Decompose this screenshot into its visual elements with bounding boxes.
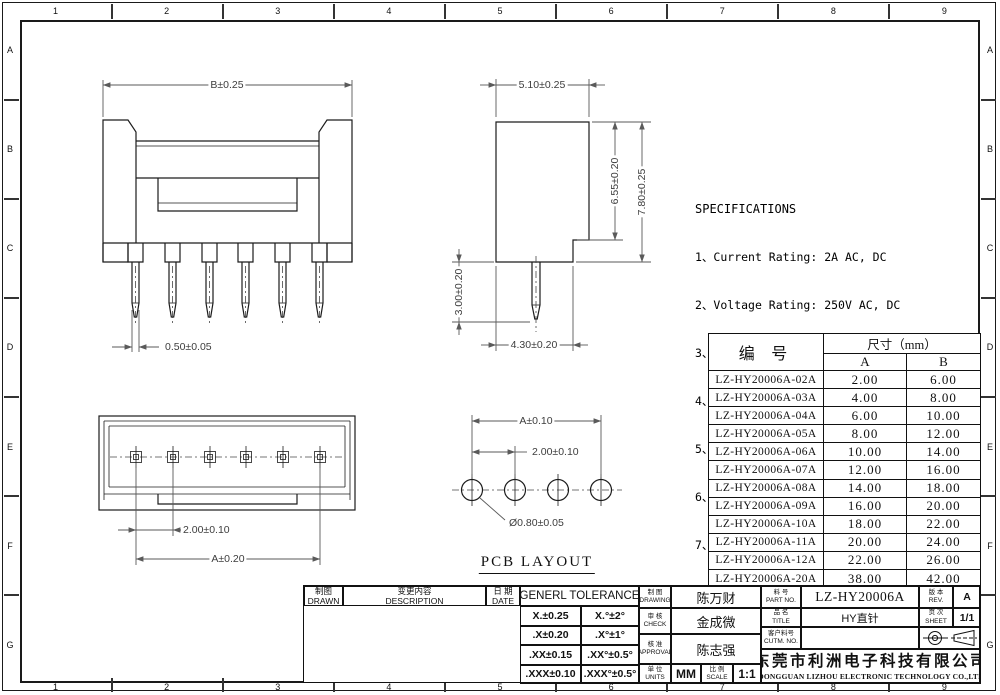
cell-part-no: LZ-HY20006A-11A [709,533,824,551]
specifications-title: SPECIFICATIONS [695,201,970,217]
drawing-label: 制 图 DRAWING [639,586,671,608]
grid-label: 6 [556,4,667,18]
part-no-label: 料 号 PART NO. [761,586,801,608]
grid-label: E [984,397,996,496]
spec-item: 2、Voltage Rating: 250V AC, DC [695,297,970,313]
scale-value: 1:1 [733,664,761,684]
sheet-label: 页 次 SHEET [919,608,953,627]
spec-item: 1、Current Rating: 2A AC, DC [695,249,970,265]
approval-label-cn: 核 准 [648,641,663,649]
customer-part-no-label: 客户料号 CUTM. NO. [761,627,801,649]
table-row: LZ-HY20006A-11A20.0024.00 [709,533,981,551]
grid-label: 3 [222,4,333,18]
grid-label: D [4,298,16,397]
tolerance-linear: X.±0.25 [520,606,581,626]
cell-dim-b: 24.00 [907,533,981,551]
grid-label: D [984,298,996,397]
company-name-en: DONGGUAN LIZHOU ELECTRONIC TECHNOLOGY CO… [761,672,981,682]
scale-label-cn: 比 例 [710,666,725,674]
cell-dim-a: 2.00 [824,371,907,389]
projection-symbol-cell [919,627,981,649]
cell-part-no: LZ-HY20006A-08A [709,479,824,497]
cell-dim-b: 6.00 [907,371,981,389]
grid-label: 4 [333,4,444,18]
cell-dim-a: 22.00 [824,551,907,569]
col-header-part-no: 编 号 [709,334,824,371]
cell-part-no: LZ-HY20006A-12A [709,551,824,569]
top-view [99,416,355,565]
table-row: LZ-HY20006A-06A10.0014.00 [709,443,981,461]
cell-dim-b: 22.00 [907,515,981,533]
cell-part-no: LZ-HY20006A-07A [709,461,824,479]
sheet-value: 1/1 [953,608,981,627]
table-row: LZ-HY20006A-03A4.008.00 [709,389,981,407]
table-row: LZ-HY20006A-04A6.0010.00 [709,407,981,425]
dim-front-body-width: B±0.25 [208,80,245,91]
parts-table: 编 号 尺寸（mm） A B LZ-HY20006A-02A2.006.00LZ… [708,333,981,588]
drawing-sheet: 123456789 123456789 ABCDEFG ABCDEFG [0,0,1000,695]
grid-band-right: ABCDEFG [984,0,996,695]
cell-dim-a: 4.00 [824,389,907,407]
product-name-label-cn: 品 名 [774,609,789,617]
dim-side-overall-height: 7.80±0.25 [637,167,648,218]
tolerance-linear: .XX±0.15 [520,645,581,665]
check-name: 金成微 [671,608,761,634]
product-name-label-en: TITLE [772,618,790,626]
dim-pcb-hole-pitch: 2.00±0.10 [530,447,581,458]
cell-dim-a: 12.00 [824,461,907,479]
rev-label: 版 本 REV. [919,586,953,608]
tolerance-linear: .XXX±0.10 [520,665,581,685]
table-row: LZ-HY20006A-09A16.0020.00 [709,497,981,515]
sheet-label-cn: 页 次 [929,609,944,617]
tolerance-angular: X.°±2° [581,606,639,626]
check-label: 审 核 CHECK [639,608,671,634]
grid-label: F [4,496,16,595]
scale-label-en: SCALE [706,674,727,682]
drawn-label-cn: 制图 [315,586,332,596]
scale-label: 比 例 SCALE [701,664,733,684]
dim-side-base-depth: 4.30±0.20 [509,340,560,351]
cell-part-no: LZ-HY20006A-06A [709,443,824,461]
sheet-label-en: SHEET [925,618,947,626]
drawing-name: 陈万财 [671,586,761,608]
cell-part-no: LZ-HY20006A-04A [709,407,824,425]
cell-dim-b: 20.00 [907,497,981,515]
table-row: LZ-HY20006A-07A12.0016.00 [709,461,981,479]
front-view-pins [128,243,327,326]
grid-label: A [984,0,996,99]
rev-label-cn: 版 本 [929,589,944,597]
drawing-label-en: DRAWING [639,597,670,605]
drawn-label-en: DRAWN [308,596,340,606]
customer-label-en: CUTM. NO. [764,638,798,646]
cell-dim-b: 26.00 [907,551,981,569]
grid-label: F [984,496,996,595]
col-header-size: 尺寸（mm） [824,334,981,354]
approval-label: 核 准 APPROVAL [639,634,671,664]
grid-label: 8 [778,4,889,18]
cell-dim-b: 14.00 [907,443,981,461]
product-name-label: 品 名 TITLE [761,608,801,627]
dim-pcb-hole-diameter: Ø0.80±0.05 [507,518,566,529]
grid-label: 5 [444,4,555,18]
title-block: 制图 DRAWN 变更内容 DESCRIPTION 日 期 DATE GENER… [303,585,980,683]
cell-dim-b: 16.00 [907,461,981,479]
side-view [452,79,651,351]
cell-part-no: LZ-HY20006A-05A [709,425,824,443]
date-header: 日 期 DATE [486,586,520,606]
table-row: LZ-HY20006A-02A2.006.00 [709,371,981,389]
third-angle-projection-icon [921,628,979,648]
tolerance-angular: .XXX°±0.5° [581,665,639,685]
parts-table-body: LZ-HY20006A-02A2.006.00LZ-HY20006A-03A4.… [709,371,981,588]
col-header-b: B [907,354,981,371]
description-label-cn: 变更内容 [397,586,431,596]
dim-side-inner-height: 6.55±0.20 [610,156,621,207]
dim-side-body-depth: 5.10±0.25 [517,80,568,91]
part-no-label-en: PART NO. [766,597,796,605]
units-label-cn: 单 位 [648,666,663,674]
grid-label: 2 [111,681,222,693]
cell-dim-a: 6.00 [824,407,907,425]
dim-side-pin-length: 3.00±0.20 [454,267,465,318]
tolerance-linear: .X±0.20 [520,626,581,646]
grid-label: B [4,99,16,198]
drawing-label-cn: 制 图 [648,589,663,597]
col-header-a: A [824,354,907,371]
cell-part-no: LZ-HY20006A-09A [709,497,824,515]
check-label-cn: 审 核 [648,613,663,621]
table-row: LZ-HY20006A-08A14.0018.00 [709,479,981,497]
grid-label: 1 [0,681,111,693]
cell-dim-a: 16.00 [824,497,907,515]
date-label-cn: 日 期 [493,586,512,596]
cell-dim-b: 18.00 [907,479,981,497]
approval-label-en: APPROVAL [639,649,671,657]
product-name-value: HY直针 [801,608,919,627]
cell-dim-b: 10.00 [907,407,981,425]
grid-label: C [984,199,996,298]
rev-label-en: REV. [929,597,944,605]
grid-label: G [4,596,16,695]
grid-label: 7 [667,4,778,18]
cell-dim-a: 20.00 [824,533,907,551]
part-no-value: LZ-HY20006A [801,586,919,608]
grid-label: A [4,0,16,99]
units-label: 单 位 UNITS [639,664,671,684]
grid-band-left: ABCDEFG [4,0,16,695]
cell-part-no: LZ-HY20006A-10A [709,515,824,533]
part-no-label-cn: 料 号 [774,589,789,597]
cell-part-no: LZ-HY20006A-03A [709,389,824,407]
dim-pcb-hole-span: A±0.10 [517,416,554,427]
customer-label-cn: 客户料号 [768,630,794,638]
grid-label: 1 [0,4,111,18]
grid-label: C [4,199,16,298]
tolerance-angular: .XX°±0.5° [581,645,639,665]
rev-value: A [953,586,981,608]
description-label-en: DESCRIPTION [385,596,443,606]
cell-dim-a: 10.00 [824,443,907,461]
cell-dim-a: 14.00 [824,479,907,497]
tolerance-title: GENERL TOLERANCE [520,586,639,606]
units-label-en: UNITS [645,674,665,682]
approval-name: 陈志强 [671,634,761,664]
cell-dim-b: 8.00 [907,389,981,407]
date-label-en: DATE [492,596,514,606]
cell-part-no: LZ-HY20006A-02A [709,371,824,389]
units-value: MM [671,664,701,684]
cell-dim-a: 18.00 [824,515,907,533]
table-row: LZ-HY20006A-05A8.0012.00 [709,425,981,443]
dim-top-pin-pitch: 2.00±0.10 [181,525,232,536]
grid-label: G [984,596,996,695]
check-label-en: CHECK [644,621,667,629]
dim-top-pin-span: A±0.20 [209,554,246,565]
grid-label: E [4,397,16,496]
pcb-layout [452,415,622,520]
dim-front-pin-width: 0.50±0.05 [163,342,214,353]
front-view [103,80,352,352]
table-row: LZ-HY20006A-10A18.0022.00 [709,515,981,533]
description-header: 变更内容 DESCRIPTION [343,586,486,606]
tolerance-angular: .X°±1° [581,626,639,646]
cell-dim-a: 8.00 [824,425,907,443]
grid-band-top: 123456789 [0,4,1000,18]
pcb-layout-title: PCB LAYOUT [479,554,595,574]
grid-label: B [984,99,996,198]
company-name-cn: 东莞市利洲电子科技有限公司 [761,652,981,672]
customer-part-no-value [801,627,919,649]
cell-dim-b: 12.00 [907,425,981,443]
company-block: 东莞市利洲电子科技有限公司 DONGGUAN LIZHOU ELECTRONIC… [761,649,981,684]
table-row: LZ-HY20006A-12A22.0026.00 [709,551,981,569]
drawn-header: 制图 DRAWN [304,586,343,606]
grid-label: 2 [111,4,222,18]
